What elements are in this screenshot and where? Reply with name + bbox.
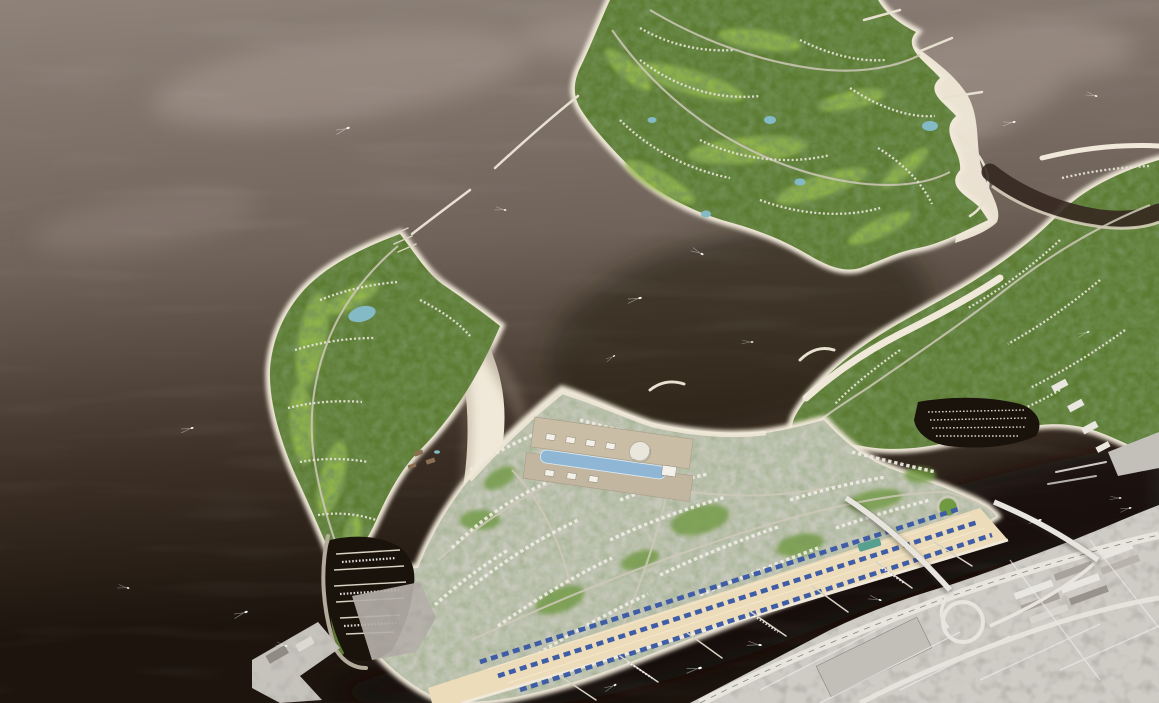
marina-parking-basin [914,398,1039,448]
aerial-render-stage: Bird's-eye architectural rendering: new … [0,0,1159,703]
masterplan-render: Bird's-eye architectural rendering: new … [0,0,1159,703]
